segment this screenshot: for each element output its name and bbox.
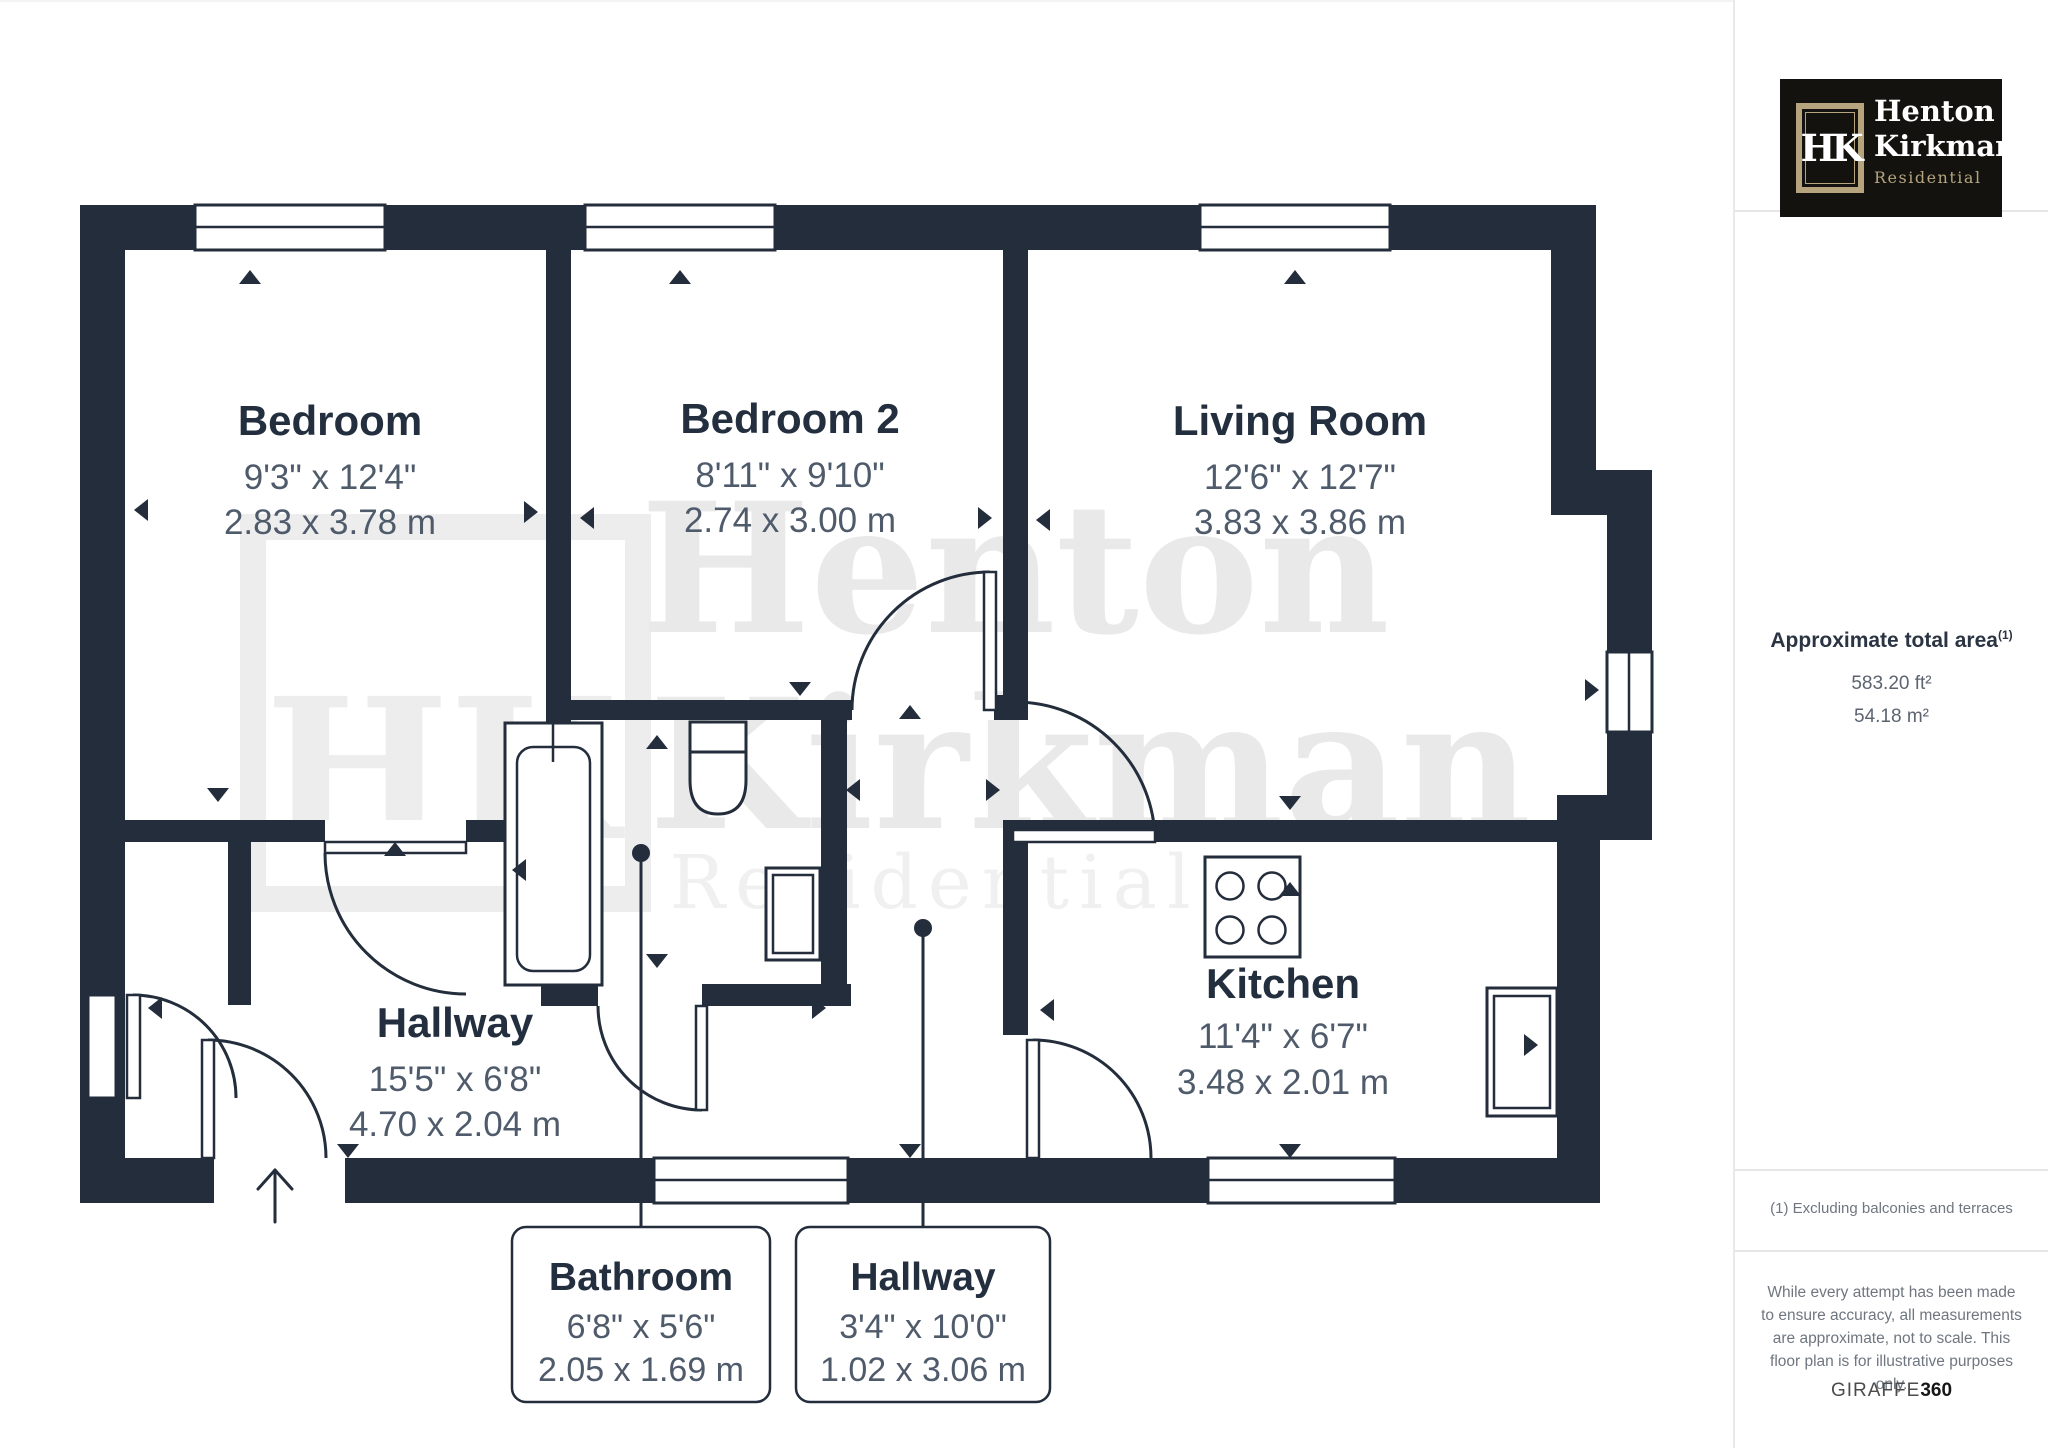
total-area-ft: 583.20 ft²	[1735, 667, 2048, 700]
hk-monogram-icon: HK	[1796, 103, 1864, 193]
total-area-m: 54.18 m²	[1735, 700, 2048, 733]
room-dims-ft: 12'6" x 12'7"	[1204, 458, 1396, 497]
floor-plan: HK Henton Kirkman Residential	[0, 0, 1733, 1448]
callout-dims-m: 1.02 x 3.06 m	[820, 1351, 1026, 1389]
room-label-bedroom: Bedroom 9'3" x 12'4" 2.83 x 3.78 m	[224, 397, 436, 542]
entrance-opening	[214, 1158, 345, 1203]
total-area-block: Approximate total area(1) 583.20 ft² 54.…	[1735, 628, 2048, 733]
wall-livingroom-left	[1003, 250, 1028, 720]
callout-dims-ft: 6'8" x 5'6"	[567, 1308, 716, 1346]
room-dims-m: 3.48 x 2.01 m	[1177, 1063, 1389, 1102]
callout-title: Bathroom	[549, 1256, 733, 1299]
footnote: (1) Excluding balconies and terraces	[1735, 1200, 2048, 1217]
wall-bathroom-right	[821, 700, 847, 1006]
callout-dims-ft: 3'4" x 10'0"	[839, 1308, 1007, 1346]
room-dims-ft: 11'4" x 6'7"	[1198, 1017, 1368, 1056]
room-dims-m: 4.70 x 2.04 m	[349, 1105, 561, 1144]
room-label-bedroom2: Bedroom 2 8'11" x 9'10" 2.74 x 3.00 m	[680, 395, 899, 540]
room-title: Hallway	[377, 999, 534, 1046]
callout-title: Hallway	[850, 1256, 996, 1299]
bathroom-door-arc	[598, 1006, 702, 1110]
room-title: Bedroom	[238, 397, 422, 444]
bathtub	[505, 723, 602, 985]
brand-360: 360	[1920, 1380, 1952, 1401]
total-area-heading-text: Approximate total area	[1770, 629, 1998, 652]
room-title: Kitchen	[1206, 960, 1360, 1007]
left-wall-window	[88, 995, 116, 1098]
bedroom-door-opening	[325, 820, 466, 842]
room-dims-m: 3.83 x 3.86 m	[1194, 503, 1406, 542]
divider	[1735, 1169, 2048, 1171]
bedroom2-door-leaf	[984, 572, 996, 710]
livingroom-door-leaf	[1013, 830, 1155, 842]
kitchen-sink	[1487, 988, 1557, 1116]
room-label-kitchen: Kitchen 11'4" x 6'7" 3.48 x 2.01 m	[1177, 960, 1389, 1102]
disclaimer: While every attempt has been made to ens…	[1759, 1281, 2024, 1396]
agency-name: Henton Kirkman Residential	[1874, 94, 2016, 187]
bathroom-door-leaf	[696, 1006, 707, 1110]
room-label-livingroom: Living Room 12'6" x 12'7" 3.83 x 3.86 m	[1173, 397, 1427, 542]
leader-dot	[632, 844, 650, 862]
floor-plan-area: HK Henton Kirkman Residential	[0, 0, 1733, 1448]
room-label-hallway: Hallway 15'5" x 6'8" 4.70 x 2.04 m	[349, 999, 561, 1144]
room-dims-ft: 8'11" x 9'10"	[695, 456, 884, 495]
room-dims-m: 2.83 x 3.78 m	[224, 503, 436, 542]
wall-kitchen-left	[1003, 842, 1028, 1035]
watermark-line3: Residential	[669, 840, 1200, 926]
wall-entry-stub	[228, 842, 251, 1005]
wall-bedroom2-bottom	[571, 700, 852, 720]
bathroom-door-opening	[598, 984, 702, 1006]
toilet	[690, 722, 746, 814]
agency-name-line2: Kirkman	[1874, 129, 2016, 164]
agency-name-line1: Henton	[1874, 94, 2016, 129]
info-sidebar: HK Henton Kirkman Residential Approximat…	[1733, 0, 2048, 1448]
total-area-heading: Approximate total area(1)	[1735, 628, 2048, 653]
wall-kitchen-right	[1557, 795, 1600, 1203]
room-title: Bedroom 2	[680, 395, 899, 442]
brand-giraffe: GIRAFFE	[1831, 1380, 1920, 1401]
room-title: Living Room	[1173, 397, 1427, 444]
kitchen-door-arc	[1033, 1040, 1151, 1158]
wall-right-upper	[1551, 205, 1596, 515]
entrance-door-leaf	[202, 1040, 214, 1158]
monogram-letters: HK	[1800, 126, 1859, 170]
total-area-footnote-ref: (1)	[1998, 628, 2013, 642]
closet-door-leaf	[127, 995, 140, 1098]
room-dims-m: 2.74 x 3.00 m	[684, 501, 896, 540]
agency-logo: HK Henton Kirkman Residential	[1780, 79, 2002, 217]
bedroom2-door-opening	[852, 700, 994, 720]
divider	[1735, 1250, 2048, 1252]
hob	[1205, 857, 1300, 957]
room-dims-ft: 15'5" x 6'8"	[369, 1060, 542, 1099]
leader-dot	[914, 919, 932, 937]
kitchen-door-leaf	[1027, 1040, 1039, 1158]
giraffe360-brand: GIRAFFE360	[1735, 1380, 2048, 1402]
bathroom-sink	[766, 868, 820, 960]
agency-tagline: Residential	[1874, 168, 2016, 187]
entrance-door-arc	[208, 1040, 326, 1158]
room-dims-ft: 9'3" x 12'4"	[244, 458, 417, 497]
callout-dims-m: 2.05 x 1.69 m	[538, 1351, 744, 1389]
closet-door-arc	[133, 995, 236, 1098]
